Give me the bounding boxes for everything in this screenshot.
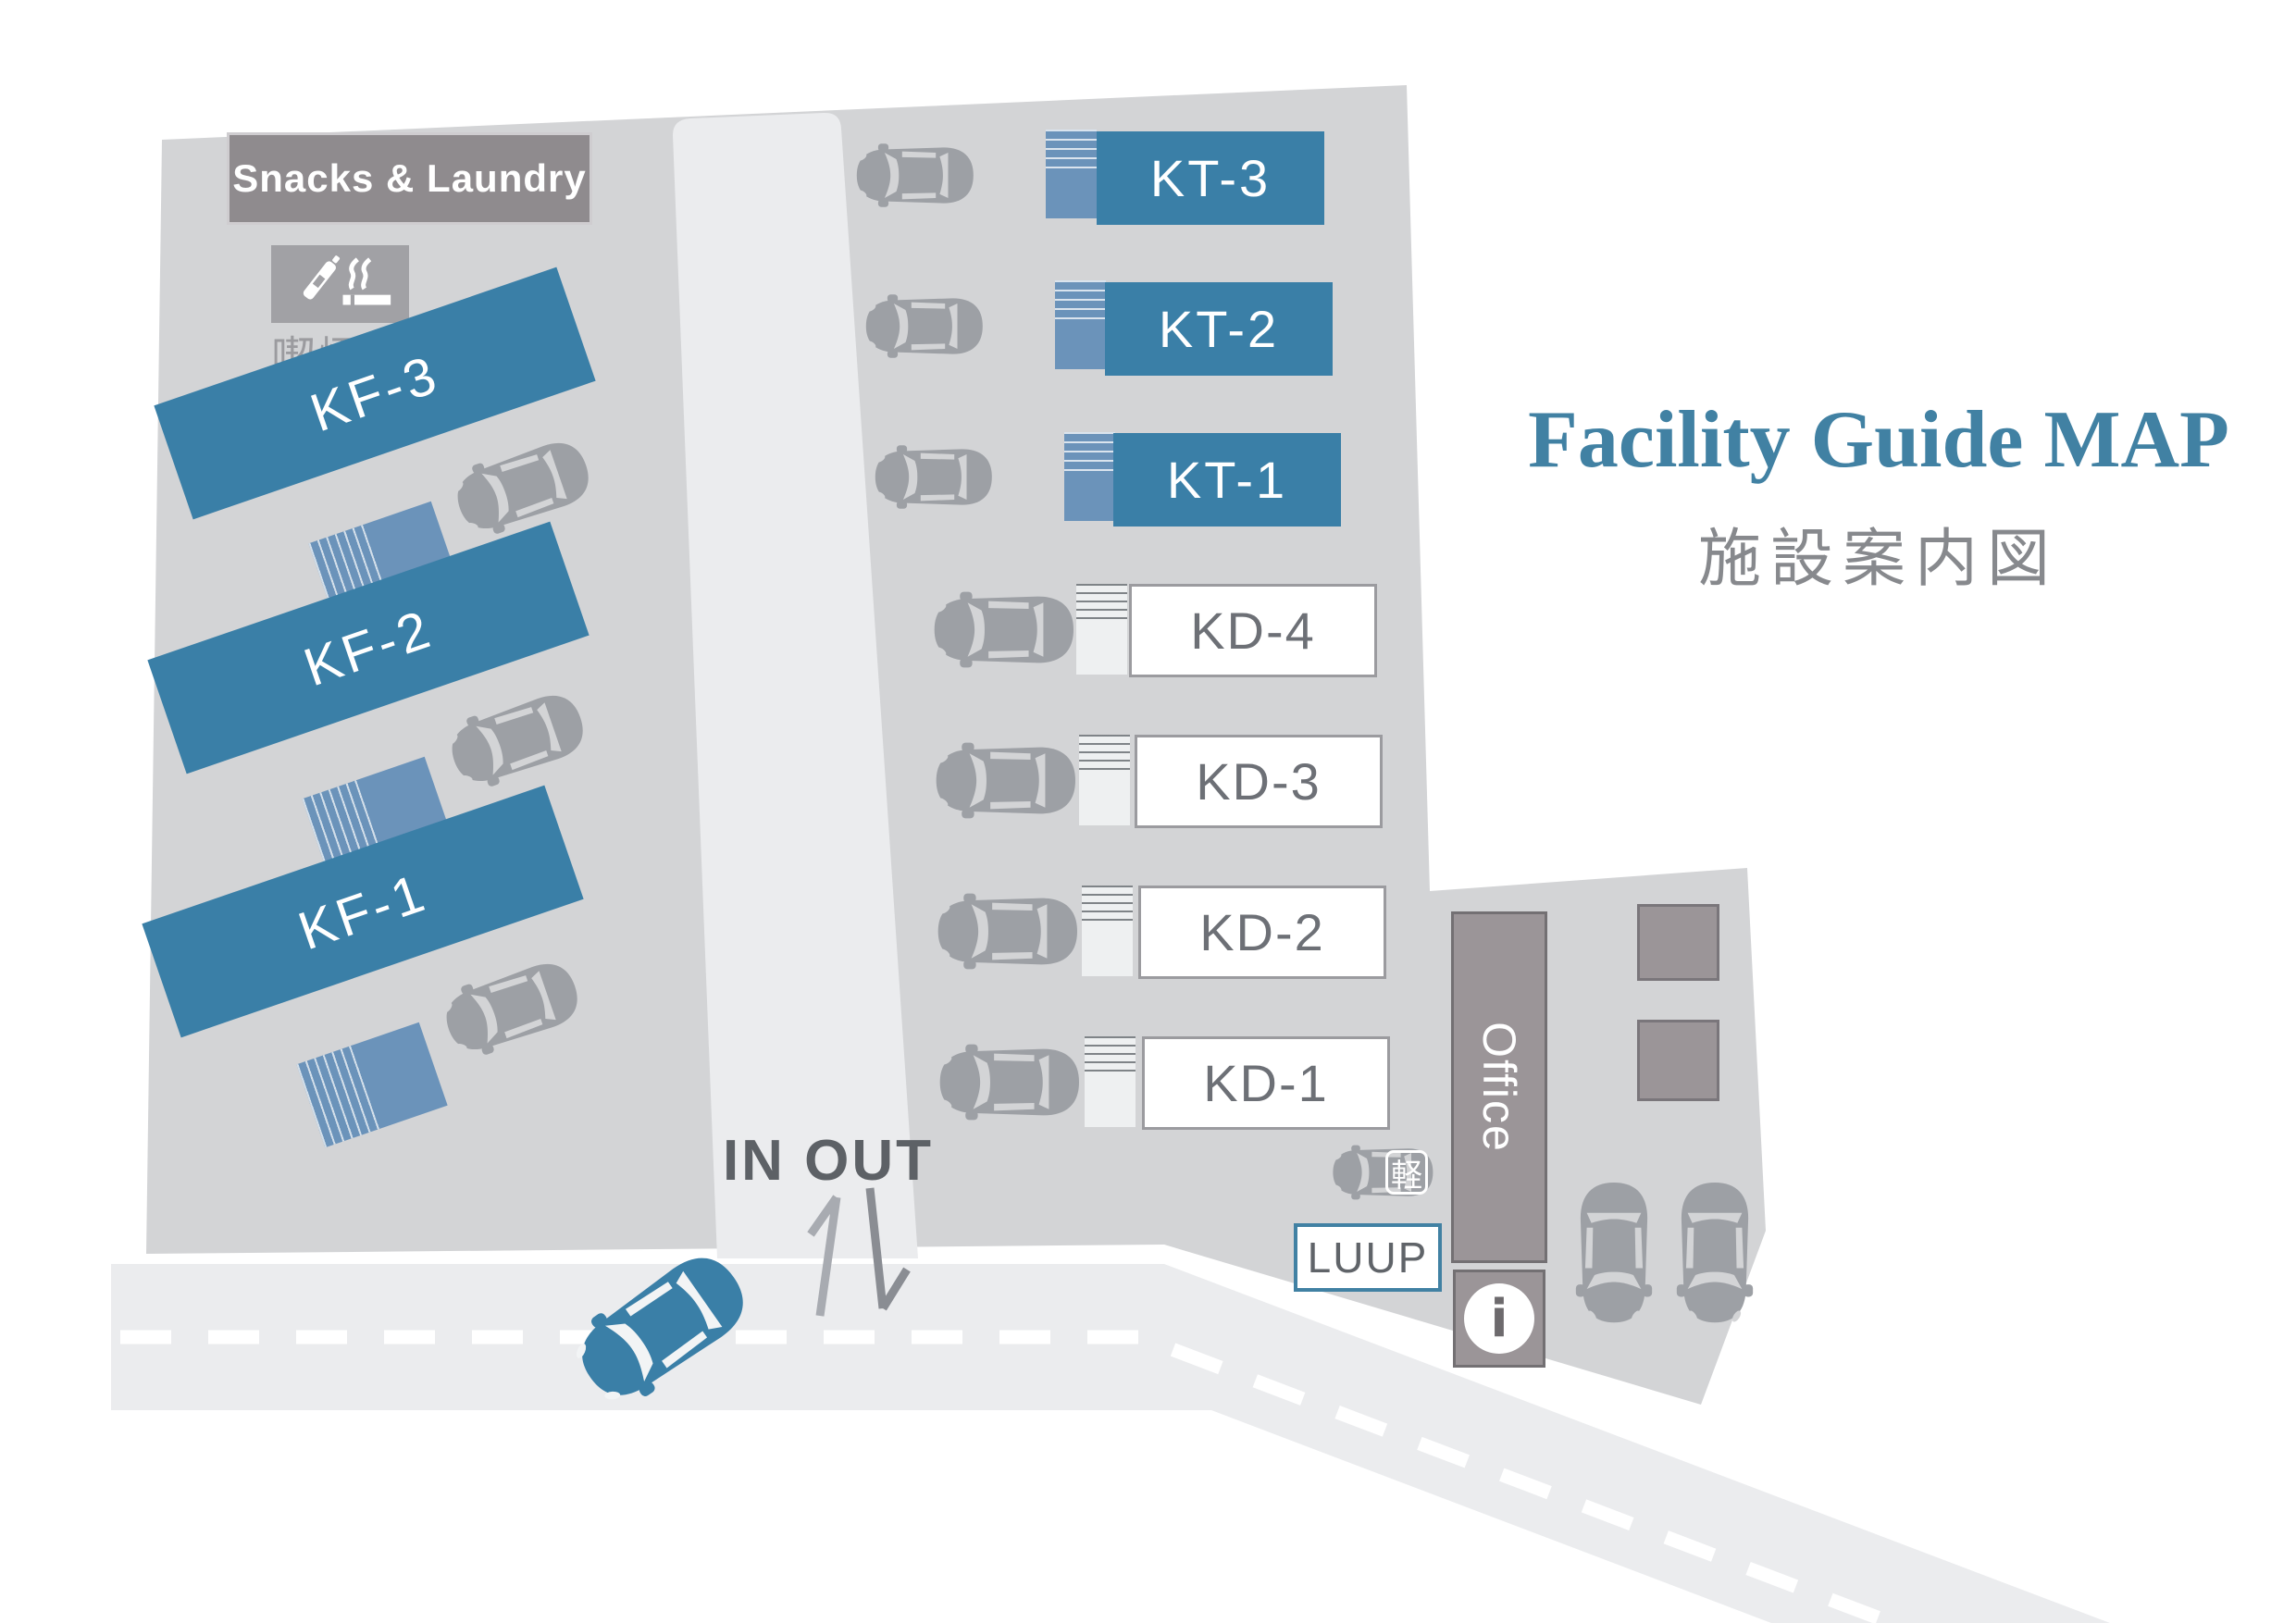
building-label: KD-3	[1196, 751, 1322, 811]
building-label: KD-4	[1190, 601, 1316, 661]
building-label: KF-2	[296, 597, 441, 698]
entry-exit-arrows-icon	[777, 1184, 925, 1323]
kd-1-entrance	[1085, 1036, 1136, 1127]
building-label: KF-3	[303, 342, 447, 443]
car-icon	[927, 888, 1082, 974]
car-icon	[929, 1039, 1084, 1125]
car-icon	[925, 737, 1080, 824]
main-road	[111, 1264, 2110, 1623]
storage-square	[1637, 904, 1719, 981]
kei-parking-badge: 軽	[1385, 1150, 1428, 1195]
kd-4-entrance	[1076, 584, 1127, 675]
building-kt-3: KT-3	[1097, 131, 1324, 225]
smoking-area-sign	[271, 245, 409, 323]
kt-1-entrance	[1064, 432, 1115, 521]
car-icon	[857, 287, 987, 365]
office-building: Office	[1451, 911, 1547, 1263]
information-sign: i	[1453, 1270, 1545, 1368]
smoking-icon	[280, 252, 401, 316]
building-kd-3: KD-3	[1135, 735, 1383, 828]
car-icon	[924, 587, 1078, 673]
car-icon	[1571, 1178, 1657, 1333]
kt-3-entrance	[1046, 130, 1097, 218]
page-title: Facility Guide MAP	[1508, 393, 2249, 487]
kt-2-entrance	[1055, 280, 1106, 369]
building-kd-4: KD-4	[1129, 584, 1377, 677]
building-kt-2: KT-2	[1105, 282, 1333, 376]
car-icon	[866, 438, 996, 516]
kd-2-entrance	[1082, 886, 1133, 976]
building-label: KT-3	[1150, 148, 1271, 208]
building-label: KT-1	[1167, 450, 1287, 510]
snacks-laundry-label: Snacks & Laundry	[232, 156, 586, 201]
office-label: Office	[1472, 1022, 1526, 1153]
page-subtitle: 施設案内図	[1508, 507, 2249, 599]
facility-guide-map: Snacks & Laundry 喫煙所 KF-3 KF-2 KF-1	[0, 0, 2296, 1623]
building-label: KD-1	[1203, 1053, 1329, 1113]
info-icon: i	[1464, 1283, 1534, 1354]
building-label: KD-2	[1199, 902, 1325, 962]
snacks-laundry-sign: Snacks & Laundry	[227, 132, 592, 225]
luup-label: LUUP	[1308, 1233, 1429, 1282]
car-icon	[848, 136, 977, 215]
building-kd-2: KD-2	[1138, 886, 1386, 979]
building-kt-1: KT-1	[1113, 433, 1341, 527]
building-label: KT-2	[1159, 299, 1279, 359]
storage-square	[1637, 1020, 1719, 1101]
kd-3-entrance	[1079, 735, 1130, 825]
luup-station: LUUP	[1294, 1223, 1442, 1292]
building-label: KF-1	[291, 861, 435, 961]
building-kd-1: KD-1	[1142, 1036, 1390, 1130]
car-icon	[1672, 1178, 1757, 1333]
